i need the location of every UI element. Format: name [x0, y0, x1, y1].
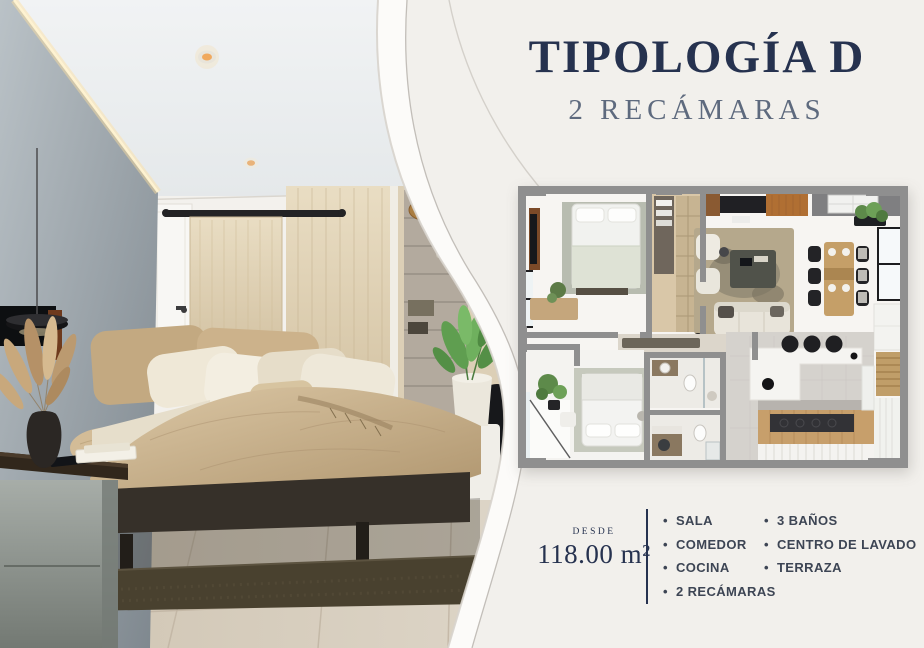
feature-item: COCINA [663, 556, 776, 580]
floorplan-render [518, 186, 908, 468]
feature-item: COMEDOR [663, 533, 776, 557]
bar-stool [826, 336, 843, 353]
feature-item: TERRAZA [764, 556, 916, 580]
feature-item: 2 RECÁMARAS [663, 580, 776, 604]
bar-stool [782, 336, 799, 353]
typology-title: TIPOLOGÍA D [470, 30, 924, 84]
feature-item: CENTRO DE LAVADO [764, 533, 916, 557]
details: DESDE 118.00 m² SALA COMEDOR COCINA 2 RE… [505, 503, 920, 618]
area-value: 118.00 m² [514, 539, 674, 570]
flyer-canvas: TIPOLOGÍA D 2 RECÁMARAS [0, 0, 924, 648]
plan-dining [808, 242, 869, 316]
right-panel: TIPOLOGÍA D 2 RECÁMARAS [0, 0, 924, 648]
feature-item: SALA [663, 509, 776, 533]
vertical-divider [646, 509, 648, 604]
feature-item: 3 BAÑOS [764, 509, 916, 533]
typology-subtitle: 2 RECÁMARAS [470, 94, 924, 127]
plan-closet [652, 194, 700, 332]
plan-kitchen [726, 332, 874, 460]
area-block: DESDE 118.00 m² [514, 527, 674, 570]
bar-stool [804, 336, 821, 353]
plan-bedroom-2 [522, 350, 648, 460]
features-left: SALA COMEDOR COCINA 2 RECÁMARAS [663, 509, 776, 603]
area-desde-label: DESDE [514, 527, 674, 537]
features-right: 3 BAÑOS CENTRO DE LAVADO TERRAZA [764, 509, 916, 580]
